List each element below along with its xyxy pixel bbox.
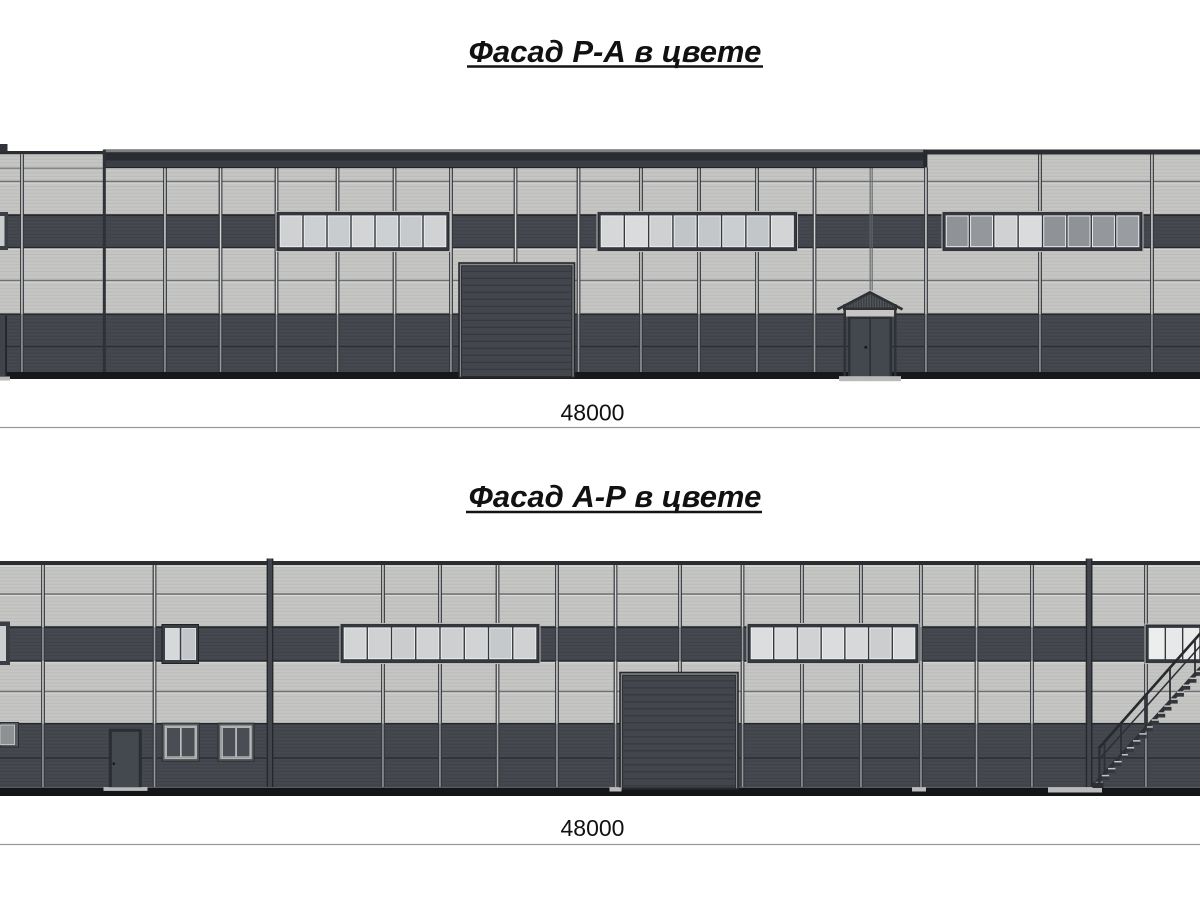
svg-text:Фасад А-Р в цвете: Фасад А-Р в цвете [469,479,762,514]
svg-text:48000: 48000 [561,815,625,841]
svg-text:Фасад Р-А в цвете: Фасад Р-А в цвете [469,34,762,69]
svg-text:48000: 48000 [561,400,625,426]
